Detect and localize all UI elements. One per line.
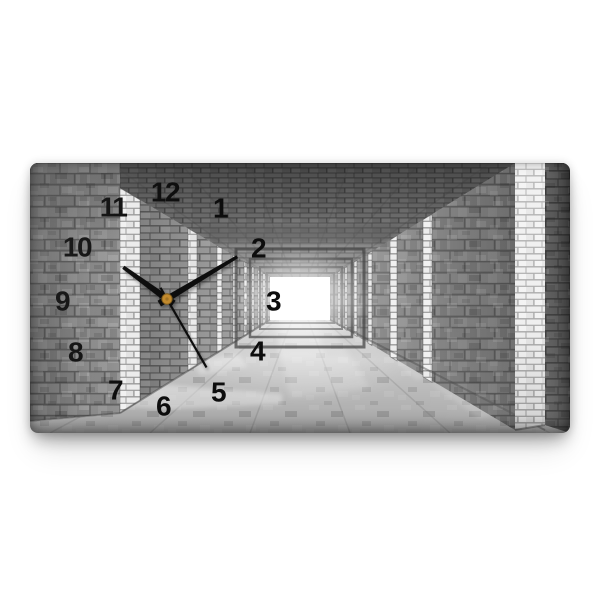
numeral-5: 5 [211,377,226,408]
numeral-10: 10 [63,232,92,263]
left-pillar [217,246,222,353]
wall-clock: 12 1 2 3 4 5 6 7 8 9 10 11 [30,163,570,433]
numeral-2: 2 [251,233,266,264]
tunnel-artwork: 12 1 2 3 4 5 6 7 8 9 10 11 [30,163,570,433]
numeral-6: 6 [156,391,171,422]
numeral-3: 3 [266,286,281,317]
right-pillar [390,236,397,361]
numeral-1: 1 [213,193,228,224]
numeral-11: 11 [100,192,128,223]
center-pin-detail [165,297,168,300]
right-front-wall [545,163,570,433]
ceiling-beam [198,225,402,243]
right-front-pillar [515,163,545,430]
numeral-9: 9 [55,286,70,317]
numeral-7: 7 [108,375,123,406]
numeral-12: 12 [151,177,180,208]
product-photo: 12 1 2 3 4 5 6 7 8 9 10 11 [0,0,600,600]
tunnel-light-glow [228,250,372,346]
numeral-8: 8 [68,337,83,368]
right-pillar [423,214,432,382]
numeral-4: 4 [250,336,266,367]
